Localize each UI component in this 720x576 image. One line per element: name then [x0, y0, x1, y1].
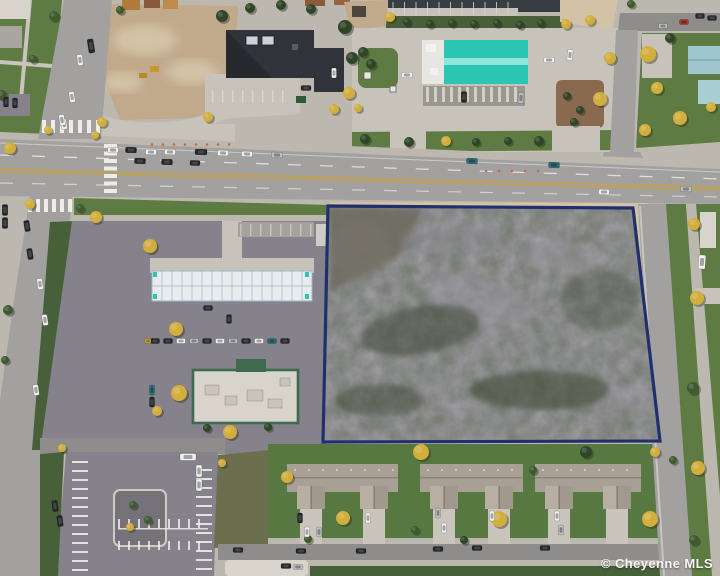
kiosk [364, 72, 371, 79]
tree-highlight [690, 220, 695, 225]
traffic-cone [537, 170, 540, 173]
car [241, 151, 252, 157]
fuel-pump [153, 294, 157, 299]
car-windshield [197, 482, 200, 489]
tree-highlight [218, 12, 223, 17]
roof-vent [570, 469, 572, 471]
parking-stripe [426, 87, 429, 102]
parking-stripe [198, 541, 200, 550]
tree-highlight [582, 448, 587, 453]
car-windshield [128, 148, 134, 151]
tree-highlight [606, 54, 611, 59]
parking-stripe [44, 199, 48, 212]
car [57, 515, 64, 527]
tree-highlight [653, 84, 658, 89]
tree-highlight [204, 425, 208, 429]
car-windshield [198, 150, 205, 153]
parking-stripe [260, 224, 262, 236]
car [433, 547, 443, 552]
parking-stripe [87, 120, 91, 133]
aerial-photo: © Cheyenne MLS [0, 0, 720, 576]
car-windshield [560, 527, 563, 533]
tree-highlight [173, 387, 180, 394]
skylight [246, 36, 258, 45]
traffic-cone [485, 170, 488, 173]
tree-highlight [45, 127, 49, 131]
parking-stripe [72, 542, 88, 544]
car [268, 339, 277, 344]
car-windshield [256, 340, 261, 343]
car-windshield [367, 515, 370, 521]
car-windshield [435, 548, 441, 551]
tree-highlight [340, 22, 346, 28]
car-windshield [474, 547, 480, 550]
tree-highlight [219, 460, 223, 464]
car-windshield [299, 515, 302, 521]
car [229, 339, 238, 344]
car [271, 152, 282, 158]
tree-highlight [642, 48, 649, 55]
roof-vent [455, 469, 457, 471]
skylight [262, 36, 274, 45]
car [164, 149, 175, 155]
parking-stripe [490, 87, 493, 102]
traffic-cone [173, 143, 176, 146]
lumber-stack [163, 0, 178, 9]
car-windshield [700, 258, 704, 266]
parking-stripe [104, 182, 117, 186]
car [233, 548, 243, 553]
car [255, 339, 264, 344]
parking-stripe [72, 506, 88, 508]
car-windshield [519, 95, 523, 101]
parking-stripe [196, 550, 212, 552]
tree-highlight [130, 502, 134, 506]
car [472, 546, 482, 551]
tree-highlight [355, 105, 359, 109]
car [402, 72, 413, 78]
parking-stripe [138, 541, 140, 550]
parking-stripe [290, 224, 292, 236]
tree-highlight [473, 139, 477, 143]
building-roof [0, 26, 22, 48]
parking-stripe [434, 87, 437, 102]
garage-shade [617, 486, 631, 509]
car-windshield [164, 160, 170, 163]
car-windshield [3, 207, 6, 213]
parking-stripe [178, 519, 180, 528]
south-sidewalk [74, 215, 332, 222]
parking-stripe [458, 87, 461, 102]
car [301, 86, 311, 91]
parking-stripe [72, 470, 88, 472]
car-windshield [709, 17, 714, 20]
building-roof [0, 0, 30, 19]
hvac-unit [205, 385, 219, 395]
car [2, 205, 8, 216]
car [680, 20, 689, 25]
parking-stripe [232, 90, 234, 103]
hvac-unit [247, 390, 263, 401]
car-windshield [244, 152, 250, 155]
parking-stripe [262, 90, 264, 103]
lumber-stack [144, 0, 160, 8]
car-windshield [151, 387, 154, 393]
tree-highlight [405, 138, 410, 143]
car-windshield [683, 187, 689, 190]
car-windshield [191, 340, 196, 343]
car [161, 159, 172, 165]
tree-highlight [692, 293, 698, 299]
tree-highlight [505, 138, 509, 142]
roof-vent [427, 469, 429, 471]
parking-stripe [240, 224, 242, 236]
car [559, 525, 564, 535]
car-windshield [146, 340, 149, 343]
roof-vent [378, 469, 380, 471]
car-windshield [556, 513, 559, 519]
tree-highlight [2, 357, 6, 361]
tree-highlight [461, 537, 465, 541]
car-windshield [404, 73, 410, 76]
fuel-pump [153, 272, 157, 277]
car [567, 49, 573, 60]
car [298, 513, 303, 523]
car-windshield [228, 316, 231, 321]
car-windshield [437, 510, 440, 516]
parking-stripe [78, 120, 82, 133]
parking-stripe [72, 497, 88, 499]
roof-vent [612, 469, 614, 471]
parking-stripe [198, 519, 200, 528]
parking-stripe [138, 519, 140, 528]
townhouse-ridge [287, 477, 398, 478]
car-windshield [3, 220, 6, 226]
parking-stripe [482, 87, 485, 102]
vacant-lot-parcel [323, 206, 660, 442]
parking-stripe [188, 519, 190, 528]
tree-highlight [92, 132, 96, 136]
roof-vent [556, 469, 558, 471]
tree-highlight [427, 21, 431, 25]
car [150, 385, 155, 395]
tree-highlight [98, 118, 103, 123]
car-windshield [469, 159, 475, 162]
parking-stripe [104, 167, 117, 171]
car [195, 149, 207, 155]
car [659, 24, 668, 29]
roof-vent [322, 469, 324, 471]
car [216, 339, 225, 344]
car [150, 397, 155, 407]
car [436, 508, 441, 518]
tree-highlight [283, 473, 288, 478]
car [177, 339, 186, 344]
tree-highlight [564, 93, 568, 97]
car-windshield [443, 525, 446, 531]
tree-highlight [345, 89, 350, 94]
car [555, 511, 560, 521]
car [442, 523, 447, 533]
parking-stripe [272, 90, 274, 103]
traffic-cone [162, 143, 165, 146]
excavator [139, 73, 147, 78]
tree-highlight [412, 527, 416, 531]
car [548, 162, 559, 168]
car-windshield [204, 340, 209, 343]
car [204, 306, 213, 311]
parking-stripe [118, 541, 120, 550]
car [4, 97, 9, 107]
car [293, 565, 303, 570]
tree-highlight [571, 119, 575, 123]
car-windshield [148, 150, 154, 153]
carwash-roof-ridge [444, 58, 528, 65]
tree-highlight [77, 205, 81, 209]
car-windshield [274, 153, 280, 156]
car-windshield [14, 100, 17, 106]
car [296, 549, 306, 554]
dumpster [296, 96, 306, 103]
parking-stripe [252, 90, 254, 103]
tree-highlight [204, 113, 209, 118]
car [281, 339, 290, 344]
building-roof [700, 212, 716, 248]
traffic-cone [228, 143, 231, 146]
car-windshield [178, 340, 183, 343]
parking-stripe [196, 505, 212, 507]
car-windshield [5, 99, 8, 105]
fuel-pump [305, 294, 309, 299]
tree-highlight [6, 144, 11, 149]
parking-stripe [474, 87, 477, 102]
parking-stripe [270, 224, 272, 236]
tree-highlight [449, 20, 453, 24]
roof-vent [483, 469, 485, 471]
roof-vent [626, 469, 628, 471]
tree-highlight [171, 324, 177, 330]
parking-stripe [52, 199, 56, 212]
car [598, 189, 609, 195]
tree-highlight [494, 20, 498, 24]
car-windshield [546, 58, 552, 61]
car [217, 150, 228, 156]
car [180, 454, 196, 461]
car [107, 147, 118, 153]
car-windshield [152, 340, 157, 343]
car-windshield [303, 87, 309, 90]
parking-stripe [196, 496, 212, 498]
car [13, 98, 18, 108]
car-windshield [269, 340, 274, 343]
traffic-cone [511, 170, 514, 173]
car [490, 511, 495, 521]
driveway [606, 509, 628, 545]
car [190, 339, 199, 344]
car [696, 14, 705, 19]
tree-highlight [517, 22, 521, 26]
traffic-cone [184, 143, 187, 146]
kiosk [390, 86, 396, 92]
car-windshield [298, 550, 304, 553]
parking-stripe [168, 519, 170, 528]
tree-highlight [666, 34, 671, 39]
parking-stripe [72, 515, 88, 517]
tree-highlight [562, 20, 567, 25]
tree-highlight [361, 135, 366, 140]
car-windshield [568, 52, 572, 58]
car-windshield [660, 25, 665, 28]
tree-highlight [690, 536, 695, 541]
tree-highlight [577, 107, 581, 111]
dirt-patch [113, 25, 177, 55]
tree-highlight [675, 113, 681, 119]
car-windshield [165, 340, 170, 343]
car [164, 339, 173, 344]
parking-stripe [72, 524, 88, 526]
tree-highlight [386, 13, 391, 18]
car-windshield [282, 340, 287, 343]
parking-stripe [69, 120, 73, 133]
car-windshield [110, 148, 116, 151]
car [544, 57, 555, 63]
car-windshield [462, 94, 465, 100]
parking-stripe [188, 541, 190, 550]
dirt-patch [102, 72, 142, 92]
townhouse-ridge [420, 477, 523, 478]
concrete-pad [238, 222, 314, 237]
tree-highlight [595, 94, 601, 100]
dark-roof-wing [314, 48, 344, 92]
lot-connector [40, 438, 225, 454]
parking-stripe [222, 90, 224, 103]
shed [352, 6, 366, 17]
car [540, 546, 550, 551]
tree-highlight [535, 137, 540, 142]
roof-vent [364, 469, 366, 471]
roof-vent [497, 469, 499, 471]
tree-highlight [265, 424, 269, 428]
car-windshield [137, 159, 143, 162]
car [698, 255, 706, 269]
tree-highlight [246, 4, 251, 9]
roof-vent [441, 469, 443, 471]
parking-stripe [300, 224, 302, 236]
rooftop-unit [426, 44, 436, 52]
car [332, 68, 337, 78]
townhome-lawns [268, 444, 660, 546]
parking-stripe [514, 87, 517, 102]
tree-highlight [145, 241, 151, 247]
parking-stripe [72, 461, 88, 463]
car [281, 564, 291, 569]
parking-stripe [450, 87, 453, 102]
tree-highlight [277, 1, 282, 6]
roof-vent [350, 469, 352, 471]
car [708, 16, 717, 21]
hvac-unit [268, 399, 282, 408]
car-windshield [295, 566, 301, 569]
townhouse-ridge [535, 477, 641, 478]
car-windshield [197, 468, 200, 475]
garage-shade [444, 486, 458, 509]
garage-shade [374, 486, 388, 509]
car-windshield [243, 340, 248, 343]
car-windshield [601, 190, 607, 193]
traffic-cone [498, 170, 501, 173]
tree-highlight [442, 137, 447, 142]
car-windshield [542, 547, 548, 550]
parking-stripe [506, 87, 509, 102]
parking-stripe [196, 514, 212, 516]
tree-highlight [92, 213, 97, 218]
roof-vent [598, 469, 600, 471]
parking-stripe [104, 159, 117, 163]
parking-stripe [178, 541, 180, 550]
house-roof-teal [698, 80, 720, 104]
tree-highlight [689, 384, 694, 389]
parking-stripe [498, 87, 501, 102]
parking-stripe [60, 199, 64, 212]
car [151, 339, 160, 344]
parking-stripe [72, 533, 88, 535]
traffic-cone [151, 143, 154, 146]
tree-highlight [530, 467, 534, 471]
aerial-photo-canvas [0, 0, 720, 576]
tree-highlight [707, 103, 712, 108]
roof-vent [294, 469, 296, 471]
car [242, 339, 251, 344]
car-windshield [184, 455, 193, 459]
car-windshield [230, 340, 235, 343]
car-windshield [491, 513, 494, 519]
roof-vent [542, 469, 544, 471]
parking-stripe [242, 90, 244, 103]
car [145, 149, 156, 155]
tree-highlight [30, 56, 34, 60]
roof-vent [336, 469, 338, 471]
parking-stripe [212, 90, 214, 103]
car [203, 339, 212, 344]
hvac-unit [225, 396, 237, 405]
car-windshield [220, 151, 226, 154]
car [680, 186, 691, 192]
car-windshield [235, 549, 241, 552]
tree-highlight [153, 407, 158, 412]
traffic-cone [524, 170, 527, 173]
tree-highlight [641, 126, 646, 131]
tree-highlight [127, 524, 131, 528]
car [356, 549, 366, 554]
car [305, 527, 310, 537]
parking-stripe [310, 224, 312, 236]
lot-island [114, 490, 166, 546]
car [125, 147, 136, 153]
car-windshield [283, 565, 289, 568]
fuel-pump [305, 272, 309, 277]
car-windshield [318, 529, 321, 535]
tree-highlight [145, 517, 149, 521]
car-windshield [167, 150, 173, 153]
gas-canopy [150, 258, 314, 301]
parking-stripe [72, 551, 88, 553]
car-windshield [551, 163, 557, 166]
tree-highlight [651, 448, 656, 453]
car [366, 513, 371, 523]
tree-highlight [628, 1, 632, 5]
tree-highlight [359, 48, 364, 53]
car-windshield [151, 399, 154, 405]
